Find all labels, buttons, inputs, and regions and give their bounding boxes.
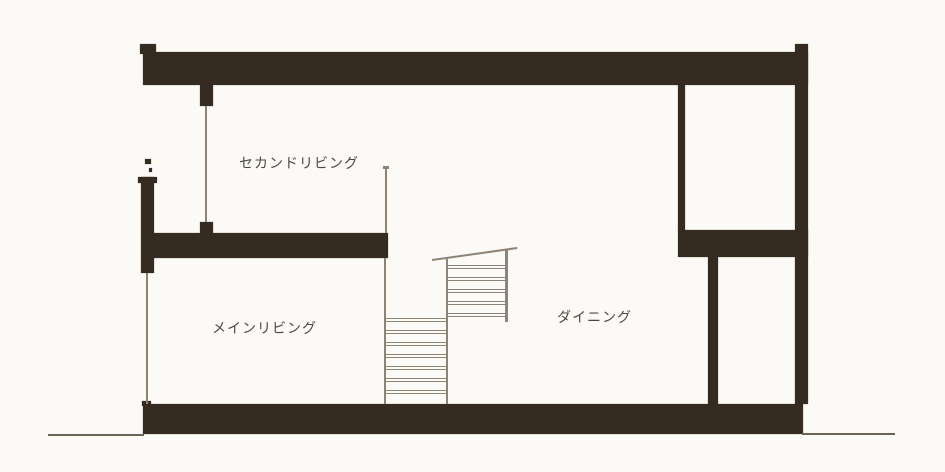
dining-partition-wall <box>708 257 718 404</box>
stair-tread <box>385 330 447 334</box>
second-floor-slab <box>143 233 388 258</box>
stair-tread <box>447 313 506 317</box>
roof-hanging-column <box>200 85 213 106</box>
stair-tread <box>447 265 506 269</box>
ground-floor-slab <box>143 404 803 434</box>
stair-tread <box>385 354 447 358</box>
stair-tread <box>385 390 447 394</box>
stair-tread <box>385 378 447 382</box>
loft-railing <box>385 167 387 233</box>
stair-tread <box>385 342 447 346</box>
vent-dot-small <box>149 168 152 172</box>
stair-tread <box>385 366 447 370</box>
left-window-line <box>146 273 148 404</box>
stair-tread <box>385 318 447 322</box>
loft-back-wall <box>678 85 685 231</box>
stair-tread <box>447 277 506 281</box>
roof-parapet-left <box>140 44 156 54</box>
balcony-parapet-wall <box>141 177 154 273</box>
room-label-second-living: セカンドリビング <box>239 156 359 174</box>
stair-tread <box>447 301 506 305</box>
section-drawing: セカンドリビング メインリビング ダイニング <box>0 0 945 472</box>
stair-lower-flight <box>385 318 447 394</box>
room-label-dining: ダイニング <box>557 310 632 328</box>
stair-tread <box>447 289 506 293</box>
stair-upper-flight <box>447 265 506 317</box>
ground-line-right <box>802 433 895 435</box>
roof-slab <box>143 52 808 85</box>
loft-floor-slab <box>678 230 808 257</box>
right-exterior-wall <box>795 44 808 404</box>
room-label-main-living: メインリビング <box>212 321 317 339</box>
window-mullion-upper <box>205 106 207 222</box>
vent-dot-large <box>145 159 151 164</box>
ground-line-left <box>48 434 144 436</box>
